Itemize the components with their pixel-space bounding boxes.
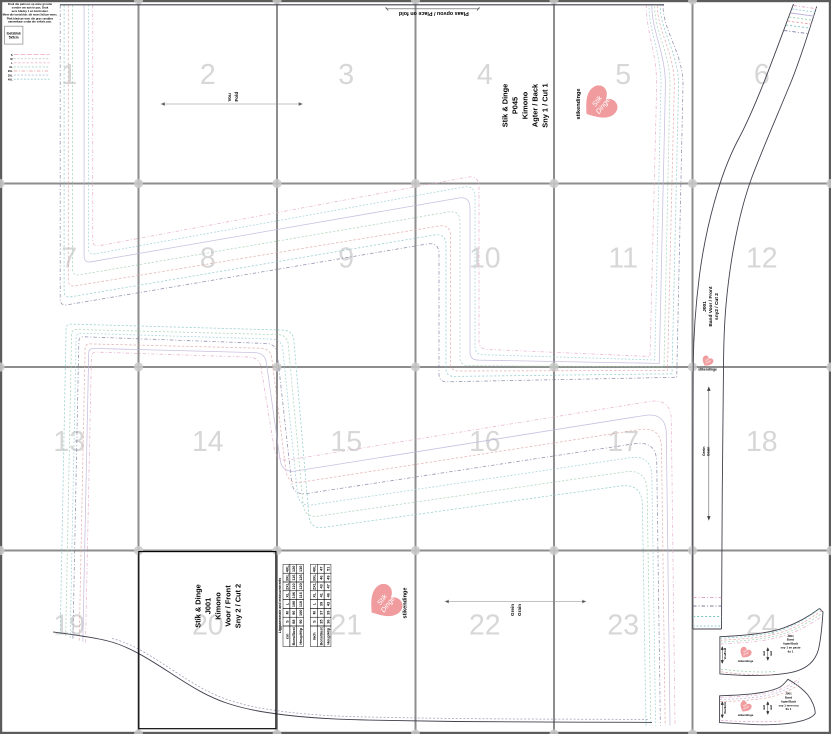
svg-text:Vou: Vou [227, 93, 232, 102]
svg-text:mid: mid [762, 705, 766, 710]
svg-text:aanmekaar sodat die sirkels pa: aanmekaar sodat die sirkels pas. [8, 20, 52, 24]
svg-text:Kimono: Kimono [214, 592, 223, 620]
svg-text:4XL: 4XL [313, 565, 317, 573]
svg-text:stikendinge: stikendinge [403, 587, 409, 618]
svg-text:10: 10 [469, 243, 501, 275]
svg-text:Sny 2 / Cut 2: Sny 2 / Cut 2 [234, 584, 243, 628]
svg-text:49: 49 [326, 575, 330, 579]
svg-text:100: 100 [292, 601, 296, 607]
svg-text:Voor / Front: Voor / Front [224, 585, 233, 627]
svg-text:39: 39 [320, 602, 324, 606]
svg-text:14: 14 [192, 426, 224, 458]
svg-text:43: 43 [320, 584, 324, 588]
svg-text:110: 110 [292, 583, 296, 589]
svg-text:5: 5 [615, 59, 631, 91]
svg-text:sny2 / Cut 2: sny2 / Cut 2 [714, 293, 720, 320]
svg-text:116: 116 [299, 592, 303, 598]
svg-text:Fold: Fold [234, 92, 239, 102]
svg-text:Grain: Grain [707, 447, 711, 456]
svg-text:Sny 1 / Cut 1: Sny 1 / Cut 1 [541, 83, 550, 127]
svg-text:mid: mid [762, 651, 766, 656]
svg-text:35: 35 [320, 619, 324, 623]
svg-text:2XL: 2XL [8, 69, 13, 73]
svg-text:130: 130 [299, 566, 303, 572]
svg-text:Bors/Bust: Bors/Bust [292, 626, 296, 645]
svg-text:17: 17 [607, 426, 639, 458]
svg-text:46: 46 [326, 593, 330, 597]
svg-text:8: 8 [200, 243, 216, 275]
svg-text:47: 47 [326, 584, 330, 588]
svg-text:Agter / Back: Agter / Back [531, 83, 540, 127]
svg-text:23: 23 [607, 610, 639, 642]
svg-text:120: 120 [299, 583, 303, 589]
svg-text:21: 21 [330, 610, 362, 642]
svg-text:mid: mid [769, 651, 773, 656]
svg-text:Heup/Hip: Heup/Hip [326, 627, 330, 644]
svg-text:11: 11 [608, 243, 638, 275]
svg-text:3XL: 3XL [8, 73, 13, 77]
svg-text:120: 120 [292, 566, 296, 572]
svg-text:2XL: 2XL [313, 582, 317, 590]
svg-text:S: S [11, 53, 13, 57]
svg-text:fix 1: fix 1 [788, 649, 794, 653]
svg-text:stikendinge: stikendinge [698, 368, 717, 372]
svg-text:Liggaamsmate and measurements: Liggaamsmate and measurements [278, 578, 282, 634]
svg-text:Stik & Dinge: Stik & Dinge [501, 84, 510, 128]
svg-text:M: M [10, 57, 12, 61]
svg-text:cm: cm [285, 633, 289, 639]
svg-text:Vou/Fold: Vou/Fold [723, 702, 727, 714]
svg-text:4XL: 4XL [8, 77, 13, 81]
svg-text:P045: P045 [511, 97, 520, 114]
svg-text:36: 36 [326, 619, 330, 623]
svg-text:18: 18 [746, 426, 778, 458]
svg-text:15: 15 [330, 426, 362, 458]
svg-text:51: 51 [326, 567, 330, 571]
svg-text:100: 100 [299, 610, 303, 616]
svg-text:J001: J001 [204, 598, 213, 614]
svg-text:S: S [285, 620, 289, 623]
svg-text:46: 46 [320, 575, 324, 579]
svg-text:12: 12 [746, 243, 778, 275]
svg-text:47: 47 [320, 567, 324, 571]
svg-text:96: 96 [292, 611, 296, 615]
svg-text:Band Voor / Front: Band Voor / Front [708, 286, 714, 327]
svg-text:Grein: Grein [702, 447, 706, 456]
svg-text:6: 6 [754, 59, 770, 91]
svg-text:5x5cm: 5x5cm [9, 36, 19, 40]
svg-text:3XL: 3XL [313, 573, 317, 581]
svg-text:41: 41 [320, 593, 324, 597]
svg-text:2: 2 [200, 59, 216, 91]
svg-text:Grain: Grain [517, 604, 522, 616]
svg-text:Kimono: Kimono [521, 91, 530, 119]
svg-text:inch: inch [313, 632, 317, 640]
svg-text:Vou/Fold: Vou/Fold [723, 647, 727, 659]
svg-text:J001: J001 [702, 301, 708, 312]
svg-text:S: S [313, 620, 317, 623]
svg-text:116: 116 [292, 575, 296, 581]
svg-text:19: 19 [53, 610, 85, 642]
svg-text:2XL: 2XL [285, 582, 289, 590]
svg-text:XL: XL [9, 65, 13, 69]
svg-text:XL: XL [285, 592, 289, 598]
svg-text:16: 16 [469, 426, 501, 458]
svg-text:mid: mid [769, 705, 773, 710]
svg-text:88: 88 [292, 619, 296, 623]
svg-text:126: 126 [299, 574, 303, 580]
svg-text:M: M [285, 611, 289, 614]
svg-text:Bors/Bust: Bors/Bust [320, 626, 324, 645]
svg-text:13: 13 [53, 426, 85, 458]
svg-text:fix 1: fix 1 [786, 707, 792, 711]
svg-text:stikendinge: stikendinge [738, 659, 754, 663]
svg-text:22: 22 [469, 610, 501, 642]
svg-text:Stik & Dinge: Stik & Dinge [194, 584, 203, 628]
svg-text:90: 90 [299, 619, 303, 623]
svg-text:43: 43 [326, 602, 330, 606]
svg-text:39: 39 [326, 611, 330, 615]
svg-text:4XL: 4XL [285, 565, 289, 573]
svg-text:Heup/Hip: Heup/Hip [299, 627, 303, 644]
svg-text:9: 9 [338, 243, 354, 275]
svg-text:XL: XL [313, 592, 317, 598]
svg-text:106: 106 [292, 592, 296, 598]
svg-text:stikendinge: stikendinge [576, 88, 582, 119]
svg-text:M: M [313, 611, 317, 614]
svg-text:3: 3 [338, 59, 354, 91]
svg-text:4: 4 [477, 59, 493, 91]
svg-text:1: 1 [61, 59, 77, 91]
svg-text:37: 37 [320, 611, 324, 615]
svg-text:Grein: Grein [510, 604, 515, 616]
svg-text:Plaas opvou / Place on fold: Plaas opvou / Place on fold [399, 10, 469, 16]
svg-text:3XL: 3XL [285, 573, 289, 581]
svg-text:110: 110 [299, 601, 303, 607]
svg-text:7: 7 [61, 243, 77, 275]
svg-text:stikendinge: stikendinge [738, 713, 754, 717]
